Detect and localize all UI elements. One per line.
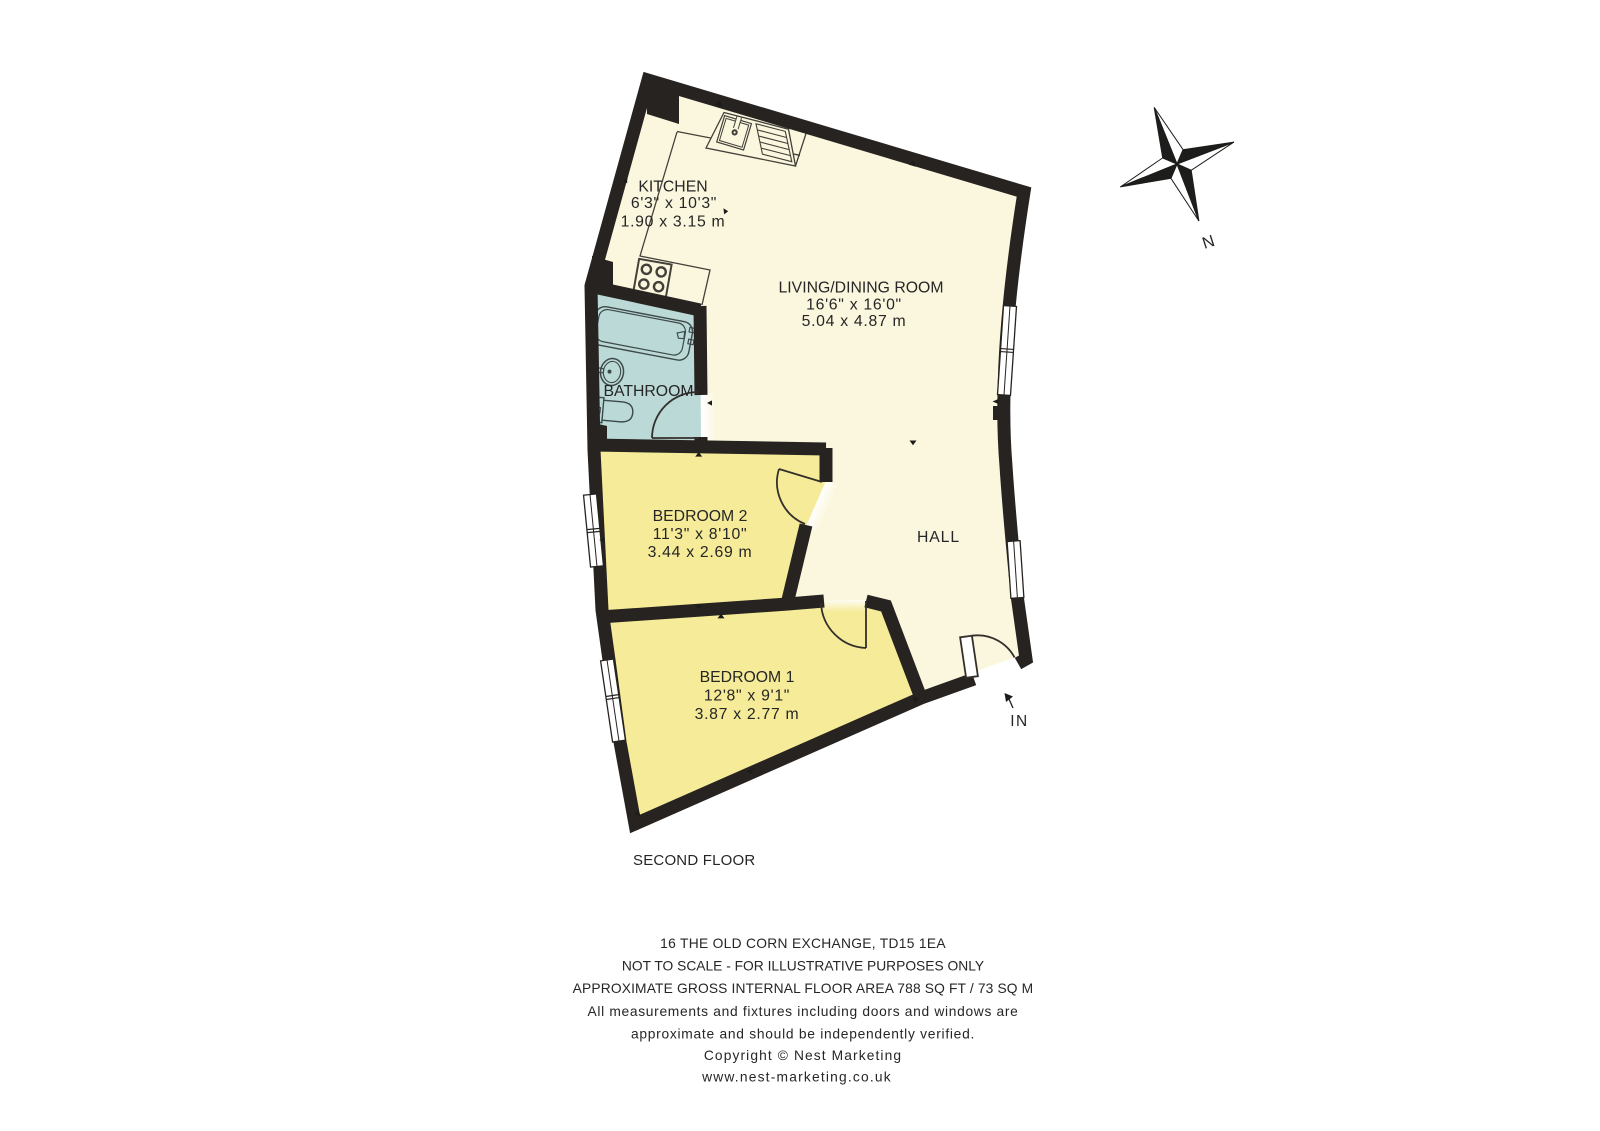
svg-text:1.90 x 3.15 m: 1.90 x 3.15 m [621,214,726,231]
svg-text:BATHROOM: BATHROOM [603,383,693,400]
svg-text:All measurements and fixtures: All measurements and fixtures including … [587,1004,1018,1019]
svg-text:5.04 x 4.87 m: 5.04 x 4.87 m [802,313,907,330]
svg-text:APPROXIMATE GROSS INTERNAL FLO: APPROXIMATE GROSS INTERNAL FLOOR AREA 78… [573,981,1034,996]
svg-text:IN: IN [1010,713,1029,730]
svg-text:Copyright © Nest Marketing: Copyright © Nest Marketing [704,1048,902,1063]
svg-text:6'3" x 10'3": 6'3" x 10'3" [631,195,717,212]
svg-text:3.87 x 2.77 m: 3.87 x 2.77 m [695,706,800,723]
svg-text:HALL: HALL [917,529,960,546]
svg-text:16'6" x 16'0": 16'6" x 16'0" [806,297,902,314]
svg-text:LIVING/DINING ROOM: LIVING/DINING ROOM [778,280,943,297]
svg-text:NOT TO SCALE - FOR ILLUSTRATIV: NOT TO SCALE - FOR ILLUSTRATIVE PURPOSES… [622,959,984,974]
svg-text:11'3" x 8'10": 11'3" x 8'10" [653,526,748,543]
svg-text:BEDROOM 1: BEDROOM 1 [700,669,795,686]
svg-text:3.44 x 2.69 m: 3.44 x 2.69 m [648,544,753,561]
svg-text:16 THE OLD CORN EXCHANGE, TD15: 16 THE OLD CORN EXCHANGE, TD15 1EA [660,936,946,951]
svg-text:www.nest-marketing.co.uk: www.nest-marketing.co.uk [701,1070,892,1085]
svg-text:approximate and should be inde: approximate and should be independently … [631,1027,975,1042]
svg-text:KITCHEN: KITCHEN [638,179,707,196]
svg-text:SECOND FLOOR: SECOND FLOOR [633,852,755,869]
svg-text:BEDROOM 2: BEDROOM 2 [653,508,748,525]
svg-text:12'8" x 9'1": 12'8" x 9'1" [704,688,790,705]
